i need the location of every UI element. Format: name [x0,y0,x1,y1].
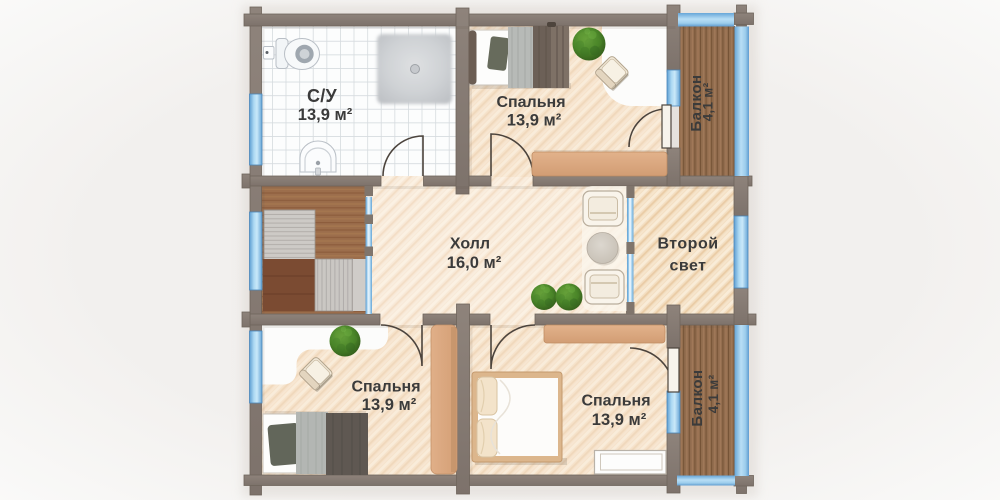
svg-text:4,1 м²: 4,1 м² [701,82,716,121]
svg-text:Холл: Холл [450,236,490,253]
svg-text:13,9 м²: 13,9 м² [592,411,647,429]
svg-text:свет: свет [669,258,706,275]
svg-text:Второй: Второй [657,236,718,253]
svg-text:13,9 м²: 13,9 м² [507,112,562,130]
svg-text:13,9 м²: 13,9 м² [298,106,353,124]
svg-text:Спальня: Спальня [496,94,565,111]
svg-text:Спальня: Спальня [581,393,650,410]
svg-text:Балкон: Балкон [689,369,706,426]
svg-text:16,0 м²: 16,0 м² [447,254,502,272]
svg-text:4,1 м²: 4,1 м² [706,374,721,413]
svg-text:13,9 м²: 13,9 м² [362,396,417,414]
svg-text:С/У: С/У [307,86,338,106]
svg-text:Спальня: Спальня [351,379,420,396]
